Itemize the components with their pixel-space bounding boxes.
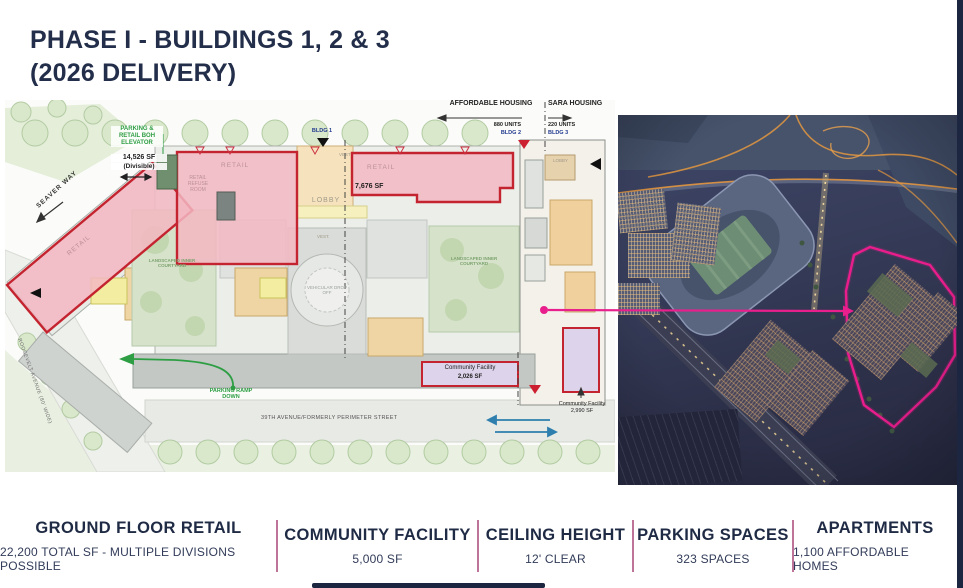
parking-ramp-label: PARKING RAMP DOWN [209, 388, 253, 401]
parking-elevator-label: PARKING & RETAIL BOH ELEVATOR [111, 126, 163, 147]
retail-refuse-label: RETAIL REFUSE ROOM [181, 176, 215, 193]
courtyard-left-label: LANDSCAPED INNER COURTYARD [137, 258, 207, 268]
right-edge-bar [957, 0, 963, 588]
stat-value: 5,000 SF [352, 552, 402, 566]
vest-top-label: VEST [339, 152, 351, 157]
affordable-units-label: 880 UNITS [483, 122, 521, 128]
lobby-label: LOBBY [301, 197, 351, 205]
stat-label: GROUND FLOOR RETAIL [35, 519, 241, 538]
stat-label: CEILING HEIGHT [486, 526, 625, 545]
stats-bar: GROUND FLOOR RETAIL 22,200 TOTAL SF - MU… [0, 519, 957, 573]
stat-parking-spaces: PARKING SPACES 323 SPACES [633, 519, 793, 573]
photo-parking-lot [618, 409, 742, 485]
photo-building [671, 203, 722, 266]
retail-right-label: RETAIL [367, 164, 395, 171]
courtyard-right [429, 226, 519, 332]
sf-divisible-note: (Divisible) [111, 163, 167, 170]
courtyard-right-label: LANDSCAPED INNER COURTYARD [437, 256, 511, 266]
stat-apartments: APARTMENTS 1,100 AFFORDABLE HOMES [793, 519, 957, 573]
photo-building [618, 189, 668, 234]
aerial-rendering-photo [618, 115, 957, 485]
community1-name: Community Facility [424, 365, 516, 372]
dropoff-label: VEHICULAR DROP OFF [305, 285, 349, 295]
housing-span-arrows [438, 115, 571, 121]
sf-right-label: 7,676 SF [355, 183, 383, 191]
site-plan: AFFORDABLE HOUSING 880 UNITS BLDG 2 SARA… [5, 100, 615, 472]
stat-value: 12' CLEAR [525, 552, 586, 566]
stat-label: PARKING SPACES [637, 526, 789, 545]
affordable-bldg-label: BLDG 2 [483, 130, 521, 136]
page-title: PHASE I - BUILDINGS 1, 2 & 3 (2026 DELIV… [30, 24, 390, 90]
community2-sf: 2,990 SF [551, 408, 613, 414]
vest-mid-label: VEST. [317, 234, 330, 239]
sara-bldg-label: BLDG 3 [548, 130, 588, 136]
sara-housing-label: SARA HOUSING [548, 100, 618, 108]
title-line2: (2026 DELIVERY) [30, 57, 390, 90]
affordable-housing-label: AFFORDABLE HOUSING [435, 100, 547, 108]
stat-community-facility: COMMUNITY FACILITY 5,000 SF [277, 519, 478, 573]
stat-label: COMMUNITY FACILITY [284, 526, 471, 545]
retail-mid-label: RETAIL [221, 162, 249, 169]
lobby-bldg3-label: LOBBY [553, 158, 568, 163]
stat-ceiling-height: CEILING HEIGHT 12' CLEAR [478, 519, 633, 573]
title-line1: PHASE I - BUILDINGS 1, 2 & 3 [30, 24, 390, 57]
39th-ave-label: 39TH AVENUE/FORMERLY PERIMETER STREET [261, 415, 397, 421]
stat-value: 1,100 AFFORDABLE HOMES [793, 545, 957, 573]
slide: PHASE I - BUILDINGS 1, 2 & 3 (2026 DELIV… [0, 0, 963, 588]
stat-value: 22,200 TOTAL SF - MULTIPLE DIVISIONS POS… [0, 545, 277, 573]
bldg1-label: BLDG 1 [305, 128, 339, 134]
photo-building [618, 283, 660, 315]
bottom-progress-bar [312, 583, 545, 588]
sf-divisible-label: 14,526 SF [111, 154, 167, 162]
sara-units-label: 220 UNITS [548, 122, 588, 128]
stat-ground-floor-retail: GROUND FLOOR RETAIL 22,200 TOTAL SF - MU… [0, 519, 277, 573]
stat-value: 323 SPACES [676, 552, 749, 566]
stat-label: APARTMENTS [816, 519, 933, 538]
community2-name: Community Facility [551, 401, 613, 407]
community1-sf: 2,026 SF [424, 374, 516, 381]
